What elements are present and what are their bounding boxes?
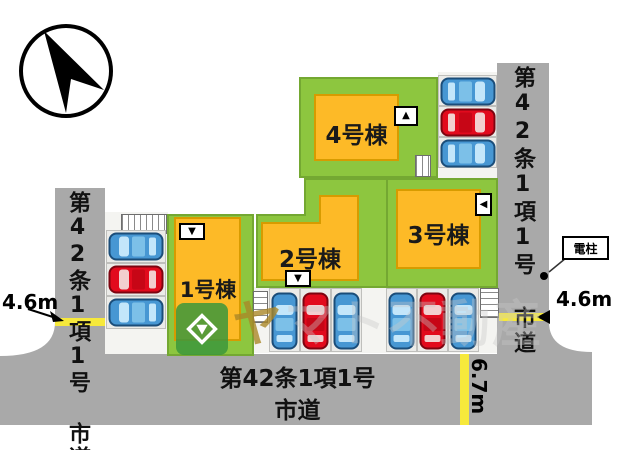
utility-pole-label: 電柱 <box>573 240 597 257</box>
bottom-road-label-line2: 市道 <box>200 391 395 425</box>
car-red <box>302 292 329 350</box>
triangle-down-icon: ▼ <box>294 274 302 284</box>
car-blue <box>108 232 164 261</box>
site-plan: 1号棟 2号棟 3号棟 4号棟 ▼ ▼ ◀ ▲ 第42条1項1号 市道 第42条… <box>0 0 640 450</box>
car-red <box>108 265 164 294</box>
car-blue <box>271 292 298 350</box>
building-3-label: 3号棟 <box>397 216 480 250</box>
right-road-label: 第42条1項1号 市道 <box>511 66 533 356</box>
triangle-down-icon: ▼ <box>188 227 196 237</box>
car-blue <box>108 298 164 327</box>
building-2-label: 2号棟 <box>262 240 358 274</box>
building-1-entrance-marker: ▼ <box>179 223 205 240</box>
car-red <box>440 108 496 137</box>
triangle-up-icon: ▲ <box>402 111 410 121</box>
car-blue <box>450 292 477 350</box>
car-blue <box>440 139 496 168</box>
left-road-label: 第42条1項1号 市道 <box>66 191 88 450</box>
building-3-entrance-marker: ◀ <box>475 193 492 216</box>
building-4-entrance-marker: ▲ <box>394 106 418 126</box>
building-4-label: 4号棟 <box>315 116 398 150</box>
car-blue <box>333 292 360 350</box>
utility-pole-callout: 電柱 <box>562 236 609 260</box>
bottom-road-label-line1: 第42条1項1号 <box>200 359 395 393</box>
bottom-road-width-label: 6.7m <box>467 358 491 414</box>
car-blue <box>440 77 496 106</box>
car-red <box>419 292 446 350</box>
building-2-entrance-marker: ▼ <box>285 270 311 287</box>
triangle-left-icon: ◀ <box>480 200 488 210</box>
left-road-width-label: 4.6m <box>2 290 58 314</box>
right-road-width-label: 4.6m <box>556 287 612 311</box>
car-blue <box>388 292 415 350</box>
building-1-label: 1号棟 <box>172 274 244 304</box>
